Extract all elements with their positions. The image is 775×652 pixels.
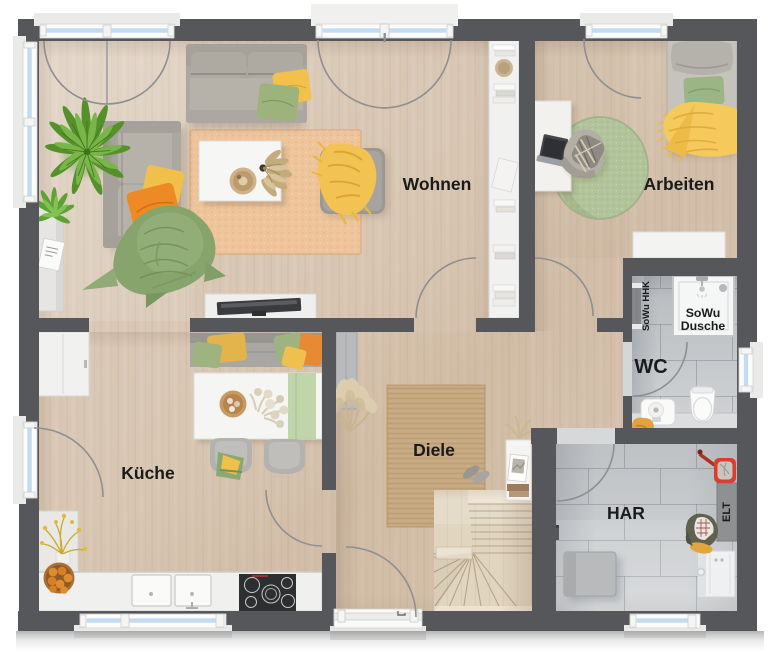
svg-text:Küche: Küche <box>121 463 175 483</box>
svg-text:HAR: HAR <box>607 503 645 523</box>
svg-text:Dusche: Dusche <box>681 319 726 333</box>
svg-text:SoWu: SoWu <box>686 306 721 320</box>
svg-text:Diele: Diele <box>413 440 455 460</box>
svg-text:ELT: ELT <box>721 502 733 522</box>
svg-text:SoWu HHK: SoWu HHK <box>641 281 652 331</box>
svg-text:Arbeiten: Arbeiten <box>644 174 715 194</box>
svg-text:WC: WC <box>634 356 667 378</box>
svg-text:Wohnen: Wohnen <box>403 174 472 194</box>
